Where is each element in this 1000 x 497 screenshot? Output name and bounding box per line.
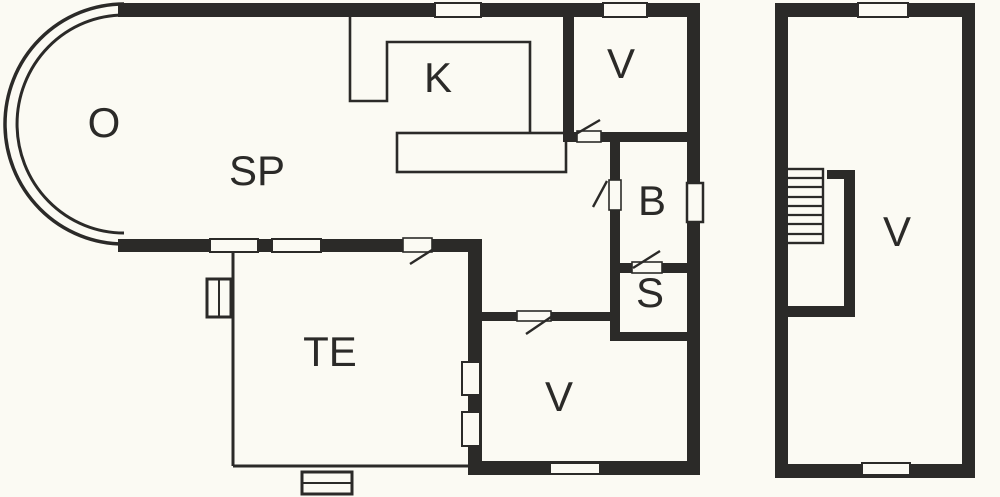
door-opening-sp-te	[403, 238, 432, 252]
stair-wall-right	[844, 170, 855, 317]
window-sp-bottom-2	[272, 239, 321, 252]
room-label-v-top: V	[607, 40, 635, 87]
room-label-b: B	[638, 177, 666, 224]
room-label-k: K	[424, 54, 452, 101]
wall-b-s-b	[662, 263, 687, 273]
room-label-sp: SP	[229, 147, 285, 194]
wall-b-s-a	[610, 263, 632, 273]
wall-vtop-bottom-b	[601, 132, 687, 142]
room-label-o: O	[88, 99, 121, 146]
stair-wall-bottom	[786, 306, 855, 317]
window-b-right	[687, 183, 703, 222]
wall-hall-a	[482, 312, 517, 321]
wall-hall-b	[551, 312, 610, 321]
wall-s-bottom	[610, 332, 700, 341]
window-sp-bottom-1	[210, 239, 258, 252]
window-top-sp	[435, 3, 481, 17]
window-entry-left-1	[462, 362, 480, 395]
door-opening-b	[609, 180, 621, 210]
wall-vtop-left	[563, 3, 574, 134]
room-label-v-entry: V	[545, 373, 573, 420]
annex-door-opening	[862, 463, 910, 475]
door-opening-entrance	[550, 463, 600, 474]
annex-window-top	[858, 3, 908, 17]
wall-b-left-a	[610, 142, 620, 180]
room-label-v-annex: V	[883, 208, 911, 255]
window-top-v	[603, 3, 647, 17]
floor-plan-drawing: O SP K V B S V TE V	[0, 0, 1000, 497]
room-label-s: S	[636, 269, 664, 316]
floor-plan: O SP K V B S V TE V	[0, 0, 1000, 497]
window-entry-left-2	[462, 412, 480, 446]
annex-wall-right	[962, 3, 975, 478]
room-label-te: TE	[303, 328, 357, 375]
wall-right	[687, 3, 700, 475]
